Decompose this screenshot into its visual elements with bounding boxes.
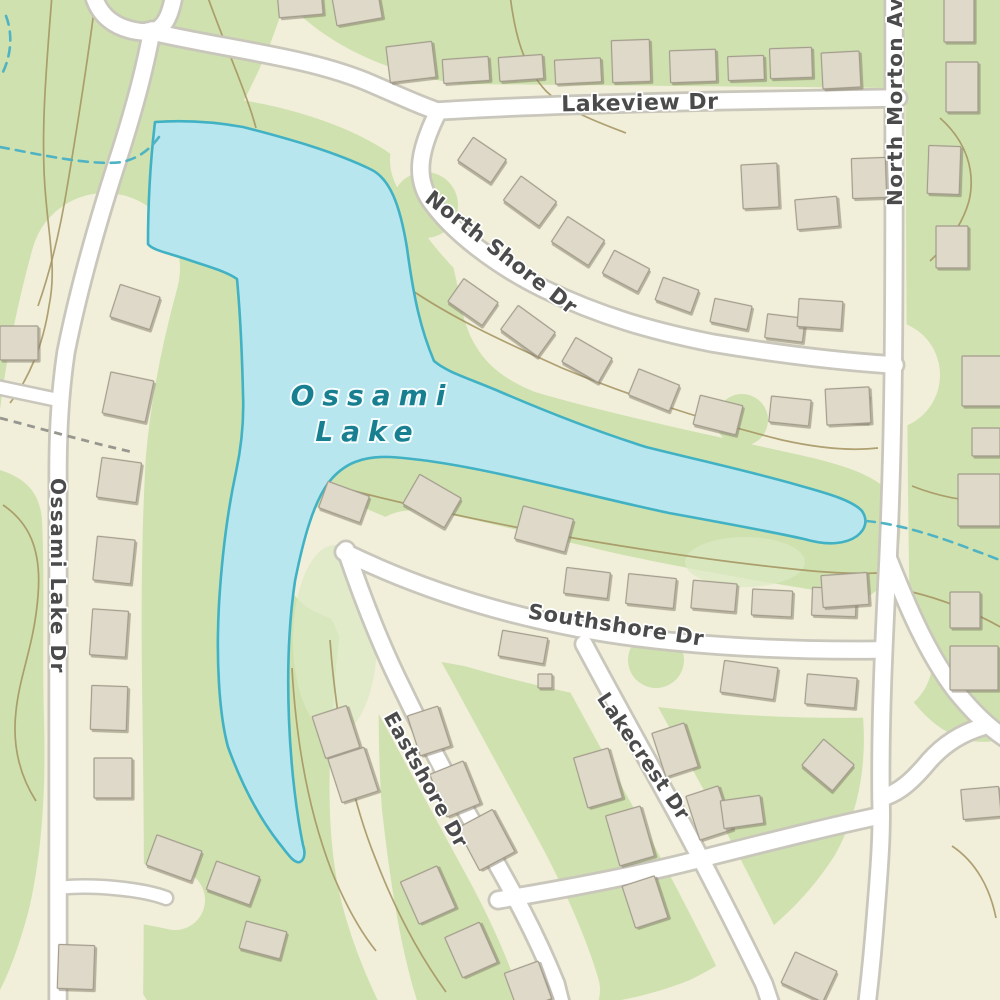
building (611, 39, 650, 82)
building (962, 356, 1000, 406)
map-viewport[interactable]: Lakeview Dr North Shore Dr North Morton … (0, 0, 1000, 1000)
building (564, 567, 611, 598)
building (950, 592, 980, 628)
building (805, 674, 857, 708)
building (96, 457, 141, 502)
building (538, 674, 552, 688)
building (741, 163, 779, 209)
building (950, 646, 998, 690)
building (57, 944, 95, 989)
building (691, 580, 737, 612)
building (958, 474, 1000, 526)
street-label-lakeview: Lakeview Dr (561, 90, 719, 118)
light-green-patch (685, 537, 805, 587)
building (751, 589, 792, 617)
building (944, 0, 974, 42)
building (936, 226, 968, 268)
building (728, 55, 765, 80)
building (554, 58, 601, 84)
building (102, 372, 154, 422)
building (946, 62, 978, 112)
building (961, 786, 1000, 819)
building (442, 56, 490, 83)
building (0, 326, 38, 360)
building (386, 41, 436, 82)
building (797, 298, 843, 329)
building (498, 54, 544, 81)
osm-style-map: Lakeview Dr North Shore Dr North Morton … (0, 0, 1000, 1000)
building (720, 660, 778, 699)
building (821, 572, 869, 607)
street-label-north-morton: North Morton Ave (883, 0, 907, 206)
building (972, 428, 1000, 456)
building (927, 145, 961, 194)
building (851, 157, 886, 198)
lake-label-line2: Lake (315, 415, 420, 448)
building (90, 685, 128, 730)
building (825, 387, 871, 425)
building (93, 536, 135, 584)
building (669, 49, 716, 83)
building (277, 0, 323, 18)
building (769, 47, 812, 78)
building (821, 51, 861, 89)
street-label-ossami-lake-dr: Ossami Lake Dr (46, 478, 70, 674)
building (720, 795, 764, 828)
building (795, 196, 839, 230)
lake-label-line1: Ossami (291, 379, 454, 412)
building (769, 396, 811, 426)
building (94, 758, 132, 798)
building (89, 609, 128, 657)
building (626, 574, 677, 609)
